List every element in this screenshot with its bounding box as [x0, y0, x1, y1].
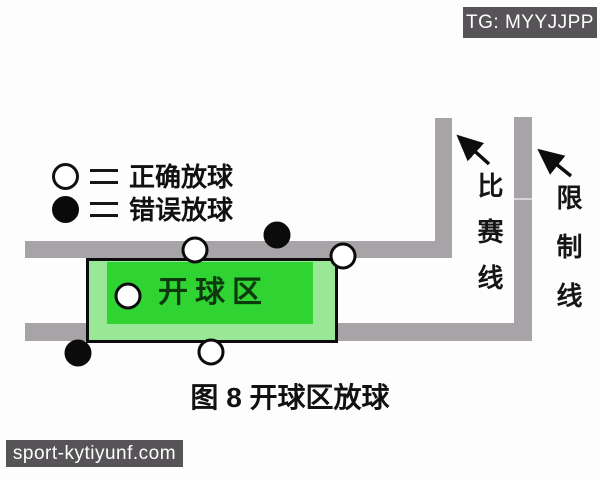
figure-canvas: TG: MYYJJPP 正确放球 错误放球 开球区: [0, 0, 600, 480]
ball-correct-inside-start-area: [115, 283, 142, 310]
ball-correct-on-game-line: [182, 237, 209, 264]
pointer-arrows: [0, 0, 600, 480]
game-line-arrow-icon: [459, 137, 489, 164]
ball-wrong-outside-left: [65, 340, 92, 367]
restriction-line-arrow-icon: [540, 151, 571, 176]
ball-correct-bottom-edge: [198, 339, 225, 366]
ball-wrong-above-game-line: [264, 222, 291, 249]
ball-correct-start-area-corner: [330, 243, 357, 270]
